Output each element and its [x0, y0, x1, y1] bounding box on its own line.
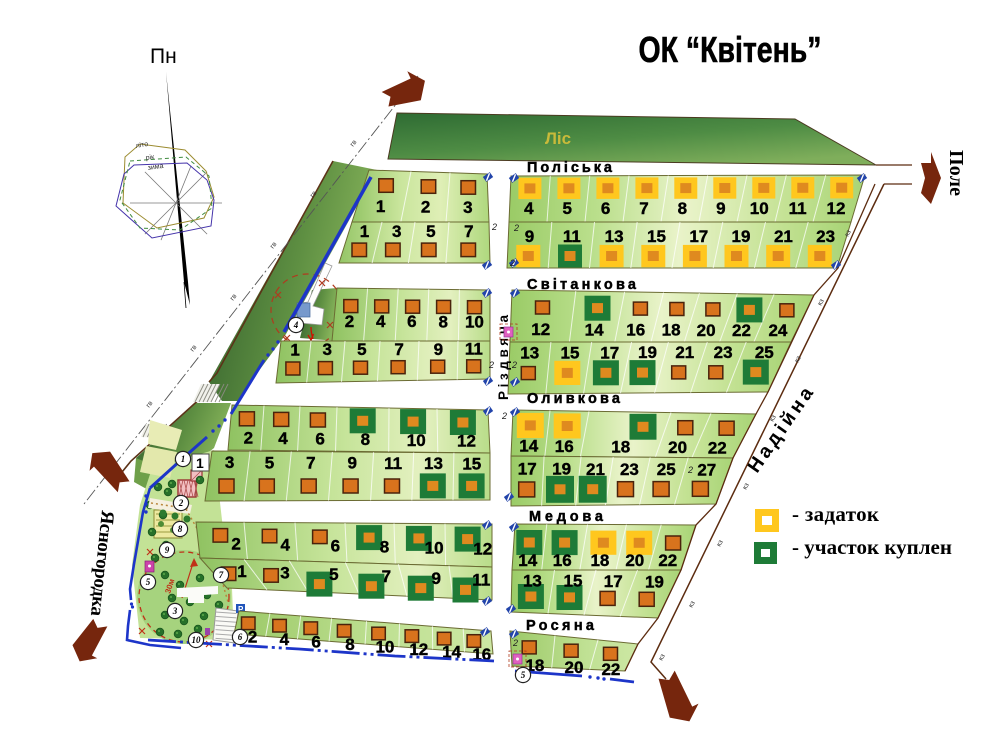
- svg-text:17: 17: [600, 343, 619, 362]
- svg-text:18: 18: [590, 551, 609, 570]
- svg-text:6: 6: [331, 536, 340, 555]
- svg-text:4: 4: [278, 429, 288, 448]
- svg-text:7: 7: [382, 567, 391, 586]
- svg-text:Росяна: Росяна: [526, 618, 597, 634]
- svg-text:8: 8: [361, 430, 370, 449]
- svg-text:22: 22: [732, 321, 751, 340]
- svg-text:14: 14: [518, 551, 537, 570]
- svg-text:13: 13: [520, 343, 539, 362]
- svg-text:13: 13: [424, 454, 443, 473]
- svg-text:4: 4: [376, 312, 386, 331]
- svg-text:2: 2: [244, 429, 253, 448]
- svg-text:гв: гв: [145, 400, 155, 409]
- svg-text:2: 2: [509, 258, 515, 268]
- svg-text:Оливкова: Оливкова: [527, 391, 623, 407]
- svg-text:6: 6: [407, 312, 416, 331]
- svg-text:11: 11: [384, 454, 402, 473]
- svg-text:2: 2: [511, 360, 517, 370]
- svg-text:Ліс: Ліс: [545, 129, 571, 148]
- svg-text:1: 1: [290, 340, 299, 359]
- svg-text:3: 3: [392, 222, 401, 241]
- svg-text:кз: кз: [688, 600, 697, 609]
- svg-text:10: 10: [407, 431, 426, 450]
- svg-text:8: 8: [678, 199, 687, 218]
- svg-text:2: 2: [488, 360, 494, 370]
- svg-text:11: 11: [465, 340, 483, 359]
- svg-text:5: 5: [521, 670, 526, 680]
- svg-text:6: 6: [238, 632, 243, 642]
- svg-text:1: 1: [237, 562, 246, 581]
- svg-text:2: 2: [421, 198, 430, 217]
- svg-text:12: 12: [531, 320, 550, 339]
- svg-text:3: 3: [280, 563, 289, 582]
- svg-text:Поле: Поле: [945, 150, 967, 196]
- svg-text:15: 15: [561, 343, 580, 362]
- svg-text:8: 8: [380, 537, 389, 556]
- svg-text:20: 20: [668, 438, 687, 457]
- svg-text:21: 21: [675, 343, 694, 362]
- svg-text:4: 4: [280, 535, 290, 554]
- svg-text:2: 2: [512, 638, 518, 648]
- svg-text:23: 23: [714, 343, 733, 362]
- svg-text:7: 7: [639, 199, 648, 218]
- svg-text:12: 12: [457, 432, 476, 451]
- svg-text:1: 1: [360, 222, 369, 241]
- svg-text:1: 1: [196, 455, 204, 471]
- svg-text:літо: літо: [135, 140, 149, 150]
- svg-text:2: 2: [687, 465, 693, 475]
- svg-text:5: 5: [357, 340, 366, 359]
- svg-text:гв: гв: [229, 293, 239, 302]
- svg-text:гв: гв: [349, 139, 359, 148]
- svg-text:2: 2: [231, 534, 240, 553]
- svg-text:16: 16: [555, 437, 574, 456]
- svg-text:20: 20: [625, 551, 644, 570]
- svg-text:4: 4: [524, 199, 534, 218]
- svg-text:13: 13: [523, 571, 542, 590]
- svg-text:19: 19: [645, 572, 664, 591]
- svg-text:19: 19: [552, 460, 571, 479]
- svg-text:Пн: Пн: [150, 45, 177, 68]
- svg-text:7: 7: [394, 340, 403, 359]
- svg-text:Ясногородка: Ясногородка: [86, 509, 118, 617]
- svg-text:21: 21: [774, 227, 793, 246]
- svg-text:гв: гв: [269, 241, 279, 250]
- svg-text:5: 5: [146, 577, 151, 587]
- svg-text:15: 15: [647, 227, 666, 246]
- svg-text:10: 10: [750, 199, 769, 218]
- svg-text:7: 7: [306, 454, 315, 473]
- svg-text:20: 20: [697, 321, 716, 340]
- svg-text:Світанкова: Світанкова: [527, 277, 639, 293]
- svg-text:19: 19: [638, 343, 657, 362]
- svg-text:2: 2: [178, 498, 184, 508]
- svg-text:14: 14: [585, 320, 604, 339]
- svg-text:9: 9: [434, 340, 443, 359]
- svg-text:кз: кз: [716, 539, 725, 548]
- svg-text:14: 14: [519, 437, 538, 456]
- svg-text:3: 3: [463, 198, 472, 217]
- svg-text:2: 2: [513, 223, 519, 233]
- svg-text:9: 9: [431, 569, 440, 588]
- svg-text:4: 4: [280, 630, 290, 649]
- svg-text:6: 6: [601, 199, 610, 218]
- svg-text:18: 18: [611, 438, 630, 457]
- svg-text:Поліська: Поліська: [527, 160, 615, 176]
- svg-text:11: 11: [472, 570, 490, 589]
- svg-text:10: 10: [465, 313, 484, 332]
- svg-text:5: 5: [562, 199, 571, 218]
- svg-text:25: 25: [657, 460, 676, 479]
- svg-text:3: 3: [172, 606, 178, 616]
- svg-text:2: 2: [248, 627, 257, 646]
- svg-text:7: 7: [464, 222, 473, 241]
- svg-text:9: 9: [165, 545, 170, 555]
- svg-text:- задаток: - задаток: [792, 502, 880, 526]
- svg-text:9: 9: [525, 227, 534, 246]
- svg-text:кз: кз: [658, 653, 667, 662]
- svg-text:7: 7: [219, 570, 224, 580]
- svg-text:6: 6: [311, 632, 320, 651]
- svg-text:8: 8: [345, 635, 354, 654]
- svg-text:- участок куплен: - участок куплен: [792, 535, 952, 559]
- svg-text:19: 19: [732, 227, 751, 246]
- svg-text:22: 22: [708, 439, 727, 458]
- svg-text:ОК “Квітень”: ОК “Квітень”: [639, 30, 822, 70]
- svg-text:рік: рік: [145, 153, 155, 162]
- svg-text:5: 5: [265, 453, 274, 472]
- svg-text:Медова: Медова: [529, 509, 606, 525]
- svg-text:9: 9: [716, 199, 725, 218]
- svg-text:8: 8: [438, 312, 447, 331]
- svg-text:Різдвяна: Різдвяна: [496, 313, 511, 400]
- svg-text:11: 11: [563, 227, 581, 246]
- svg-text:4: 4: [293, 320, 299, 330]
- svg-text:1: 1: [181, 454, 186, 464]
- svg-text:9: 9: [347, 454, 356, 473]
- svg-text:16: 16: [553, 551, 572, 570]
- svg-text:18: 18: [662, 321, 681, 340]
- svg-text:21: 21: [586, 460, 605, 479]
- svg-text:6: 6: [315, 430, 324, 449]
- svg-text:2: 2: [501, 411, 507, 421]
- svg-text:23: 23: [816, 227, 835, 246]
- svg-text:25: 25: [755, 343, 774, 362]
- svg-text:10: 10: [192, 635, 202, 645]
- svg-text:23: 23: [620, 460, 639, 479]
- svg-text:кз: кз: [742, 482, 751, 491]
- svg-text:3: 3: [225, 453, 234, 472]
- svg-text:13: 13: [605, 227, 624, 246]
- svg-text:2: 2: [491, 222, 497, 232]
- svg-text:12: 12: [473, 540, 492, 559]
- svg-text:17: 17: [518, 460, 537, 479]
- svg-text:11: 11: [789, 199, 807, 218]
- svg-text:22: 22: [601, 660, 620, 679]
- svg-text:3: 3: [322, 340, 331, 359]
- svg-text:24: 24: [768, 321, 787, 340]
- svg-text:10: 10: [425, 539, 444, 558]
- svg-text:15: 15: [564, 572, 583, 591]
- svg-text:гв: гв: [189, 344, 199, 353]
- svg-text:2: 2: [345, 312, 354, 331]
- svg-text:кз: кз: [794, 355, 803, 364]
- svg-text:1: 1: [376, 197, 385, 216]
- svg-text:15: 15: [462, 454, 481, 473]
- svg-text:8: 8: [178, 524, 183, 534]
- svg-text:17: 17: [689, 227, 708, 246]
- svg-text:27: 27: [697, 460, 716, 479]
- svg-text:зима: зима: [147, 163, 164, 172]
- svg-text:5: 5: [426, 222, 435, 241]
- svg-text:5: 5: [329, 565, 338, 584]
- svg-text:22: 22: [658, 551, 677, 570]
- svg-text:17: 17: [604, 572, 623, 591]
- svg-text:16: 16: [626, 321, 645, 340]
- svg-text:12: 12: [827, 199, 846, 218]
